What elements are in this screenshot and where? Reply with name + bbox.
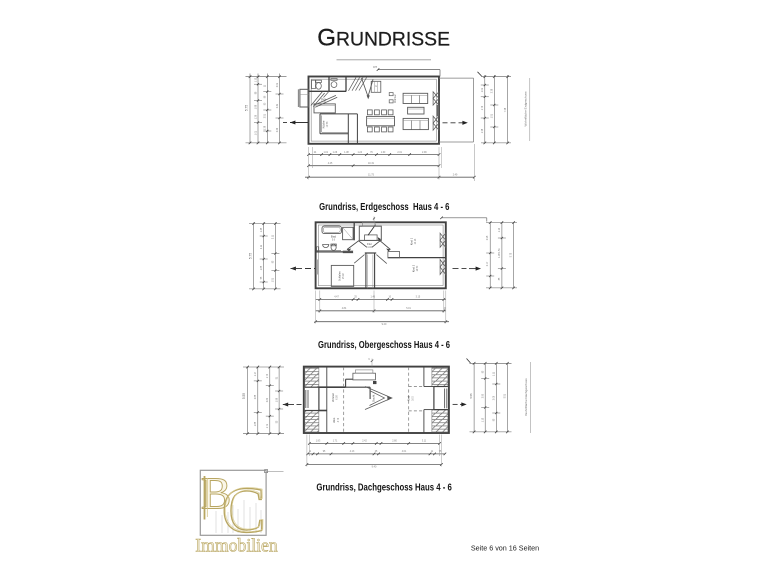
svg-text:51: 51	[276, 376, 278, 379]
svg-text:1.11: 1.11	[494, 371, 496, 376]
svg-text:1.26: 1.26	[255, 114, 257, 119]
svg-text:Kind 1: Kind 1	[410, 237, 414, 245]
svg-text:3.11: 3.11	[422, 441, 427, 443]
svg-text:G: G	[375, 85, 377, 88]
svg-text:25: 25	[354, 297, 357, 299]
svg-text:1.51: 1.51	[492, 113, 494, 118]
svg-text:1.63: 1.63	[381, 152, 386, 154]
svg-text:14.50: 14.50	[417, 265, 419, 271]
svg-text:10: 10	[389, 297, 392, 299]
svg-text:2.98: 2.98	[487, 235, 489, 240]
svg-text:Abst.: Abst.	[333, 417, 336, 423]
svg-text:Wohnfläche Dachgeschoss: Wohnfläche Dachgeschoss	[524, 378, 528, 416]
svg-text:1.96: 1.96	[276, 397, 278, 402]
svg-text:4.84: 4.84	[342, 308, 347, 310]
svg-text:Grundriss, Dachgeschoss Haus 4: Grundriss, Dachgeschoss Haus 4 - 6	[316, 483, 452, 494]
svg-text:1.01: 1.01	[255, 130, 257, 135]
svg-text:76: 76	[370, 152, 373, 154]
svg-text:95: 95	[323, 451, 326, 453]
svg-text:2.06: 2.06	[494, 395, 496, 400]
svg-text:25: 25	[375, 451, 378, 453]
svg-text:85: 85	[499, 277, 501, 280]
svg-text:2.80: 2.80	[392, 441, 397, 443]
svg-text:Wohnfläche Erdgeschoss: Wohnfläche Erdgeschoss	[524, 91, 528, 126]
svg-text:96: 96	[265, 95, 267, 98]
svg-text:55: 55	[261, 276, 263, 279]
svg-text:2.42: 2.42	[362, 441, 367, 443]
svg-text:Diele: Diele	[321, 98, 327, 101]
svg-text:11.75: 11.75	[368, 173, 375, 176]
svg-text:4.13: 4.13	[350, 451, 355, 453]
svg-text:4.46: 4.46	[367, 247, 372, 249]
svg-text:Dachf.: Dachf.	[372, 394, 376, 402]
svg-text:1.01: 1.01	[323, 152, 328, 154]
svg-text:2.90: 2.90	[482, 393, 484, 398]
svg-text:1.85: 1.85	[261, 265, 263, 270]
svg-text:2.85: 2.85	[255, 394, 257, 399]
svg-text:11: 11	[431, 451, 434, 453]
svg-text:1.38: 1.38	[265, 125, 267, 130]
svg-text:95: 95	[273, 260, 275, 263]
svg-text:90: 90	[265, 102, 267, 105]
svg-text:1.13: 1.13	[255, 77, 257, 82]
svg-text:1.46: 1.46	[371, 297, 376, 299]
svg-text:1.38: 1.38	[344, 152, 349, 154]
svg-text:Kind: Kind	[407, 395, 411, 401]
svg-text:1.98 1.51: 1.98 1.51	[499, 248, 501, 258]
svg-text:2.38: 2.38	[492, 88, 494, 93]
svg-text:1.73: 1.73	[267, 373, 269, 378]
svg-text:5.75: 5.75	[511, 252, 513, 257]
svg-text:1.71: 1.71	[267, 423, 269, 428]
svg-text:16.5: 16.5	[412, 396, 414, 401]
svg-text:5.55: 5.55	[469, 393, 473, 399]
svg-text:2.99: 2.99	[422, 152, 427, 154]
svg-text:9.20: 9.20	[382, 323, 387, 326]
svg-text:2.01: 2.01	[397, 152, 402, 154]
svg-text:Bad: Bad	[331, 235, 337, 239]
svg-text:5.75: 5.75	[248, 253, 252, 259]
svg-text:Immobilien: Immobilien	[195, 535, 278, 556]
svg-text:5.75: 5.75	[245, 105, 249, 111]
svg-text:G: G	[317, 25, 336, 52]
svg-text:1.88: 1.88	[255, 104, 257, 109]
svg-text:2.26: 2.26	[277, 127, 279, 132]
svg-text:1.51: 1.51	[273, 277, 275, 282]
svg-text:2.41: 2.41	[277, 103, 279, 108]
svg-text:95: 95	[494, 418, 496, 421]
svg-text:55: 55	[276, 420, 278, 423]
svg-text:Wohnen: Wohnen	[394, 93, 397, 103]
svg-text:1.71: 1.71	[333, 441, 338, 443]
svg-text:Küche: Küche	[322, 120, 326, 128]
svg-text:6.98: 6.98	[337, 395, 339, 400]
svg-text:4.45: 4.45	[328, 163, 333, 165]
svg-text:5.01: 5.01	[406, 308, 411, 310]
svg-text:Seite 6 von 16 Seiten: Seite 6 von 16 Seiten	[471, 544, 539, 553]
svg-text:2.11: 2.11	[261, 244, 263, 249]
svg-text:1.17: 1.17	[255, 371, 257, 376]
svg-text:2.11: 2.11	[273, 234, 275, 239]
svg-text:7.38: 7.38	[505, 107, 507, 112]
svg-text:1.26: 1.26	[333, 152, 338, 154]
svg-text:5.51: 5.51	[505, 393, 507, 398]
svg-text:1.45: 1.45	[261, 227, 263, 232]
svg-text:3.15: 3.15	[416, 297, 421, 299]
svg-text:9: 9	[368, 359, 370, 361]
svg-text:24: 24	[314, 152, 317, 154]
svg-text:2.60: 2.60	[267, 397, 269, 402]
svg-text:Schlafen: Schlafen	[339, 271, 342, 281]
svg-text:RUNDRISSE: RUNDRISSE	[336, 29, 450, 51]
svg-text:5.55: 5.55	[242, 393, 246, 399]
svg-text:2.49: 2.49	[453, 174, 458, 176]
svg-text:2.17: 2.17	[487, 261, 489, 266]
svg-text:1.13: 1.13	[499, 227, 501, 232]
svg-text:88: 88	[255, 91, 257, 94]
svg-text:20: 20	[444, 308, 447, 310]
svg-text:1.15: 1.15	[482, 417, 484, 422]
svg-text:1.01: 1.01	[482, 87, 484, 92]
svg-text:5.6: 5.6	[332, 239, 336, 241]
svg-text:2.51: 2.51	[265, 113, 267, 118]
svg-text:4.47: 4.47	[334, 297, 339, 299]
svg-text:2.01: 2.01	[277, 82, 279, 87]
svg-text:15.92: 15.92	[343, 273, 345, 279]
svg-text:9.40: 9.40	[372, 466, 377, 469]
svg-text:10.16: 10.16	[415, 238, 417, 244]
svg-text:1.76: 1.76	[482, 105, 484, 110]
svg-text:4.76: 4.76	[338, 417, 340, 422]
svg-text:11: 11	[265, 84, 267, 87]
svg-text:Grundriss, Obergeschoss Haus 4: Grundriss, Obergeschoss Haus 4 - 6	[318, 340, 450, 351]
svg-text:978: 978	[373, 66, 378, 69]
svg-text:Zimmer: Zimmer	[331, 393, 335, 402]
svg-text:1.85: 1.85	[255, 421, 257, 426]
svg-text:95: 95	[482, 370, 484, 373]
svg-text:1.24: 1.24	[357, 152, 362, 154]
svg-text:10.31: 10.31	[368, 162, 375, 165]
svg-text:Grundriss, Erdgeschoss Haus 4: Grundriss, Erdgeschoss Haus 4 - 6	[319, 202, 449, 213]
svg-text:10.56: 10.56	[327, 121, 329, 127]
svg-text:1.83: 1.83	[316, 441, 321, 443]
svg-text:Flur: Flur	[367, 242, 372, 246]
svg-text:1.38: 1.38	[482, 128, 484, 133]
svg-text:4.01: 4.01	[402, 451, 407, 453]
svg-text:Kind 2: Kind 2	[412, 264, 416, 272]
